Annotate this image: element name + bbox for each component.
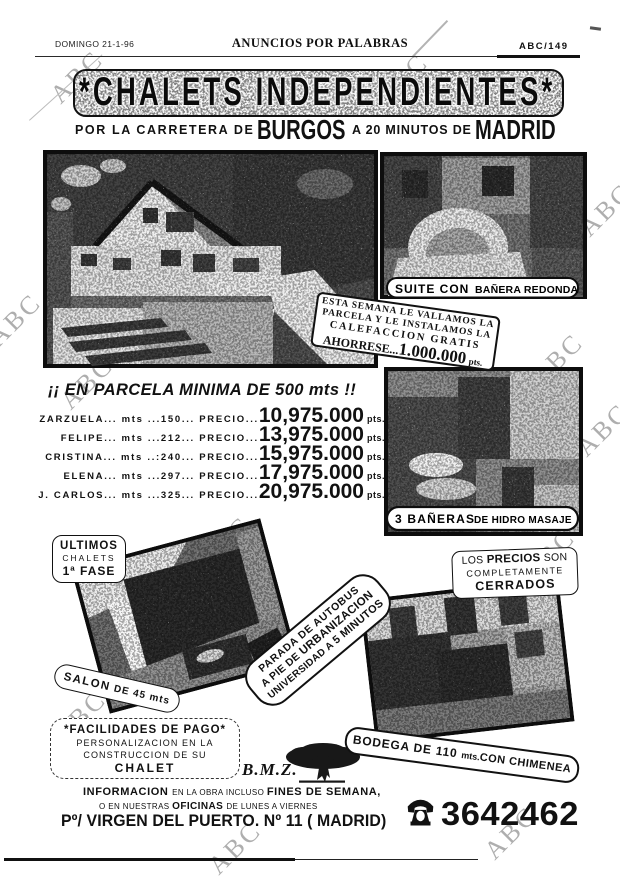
svg-text:DE HIDRO MASAJE: DE HIDRO MASAJE [474, 515, 572, 526]
svg-text:SUITE CON: SUITE CON [395, 282, 469, 296]
svg-text:3 BAÑERAS: 3 BAÑERAS [395, 511, 475, 526]
svg-text:BAÑERA REDONDA: BAÑERA REDONDA [475, 283, 579, 296]
